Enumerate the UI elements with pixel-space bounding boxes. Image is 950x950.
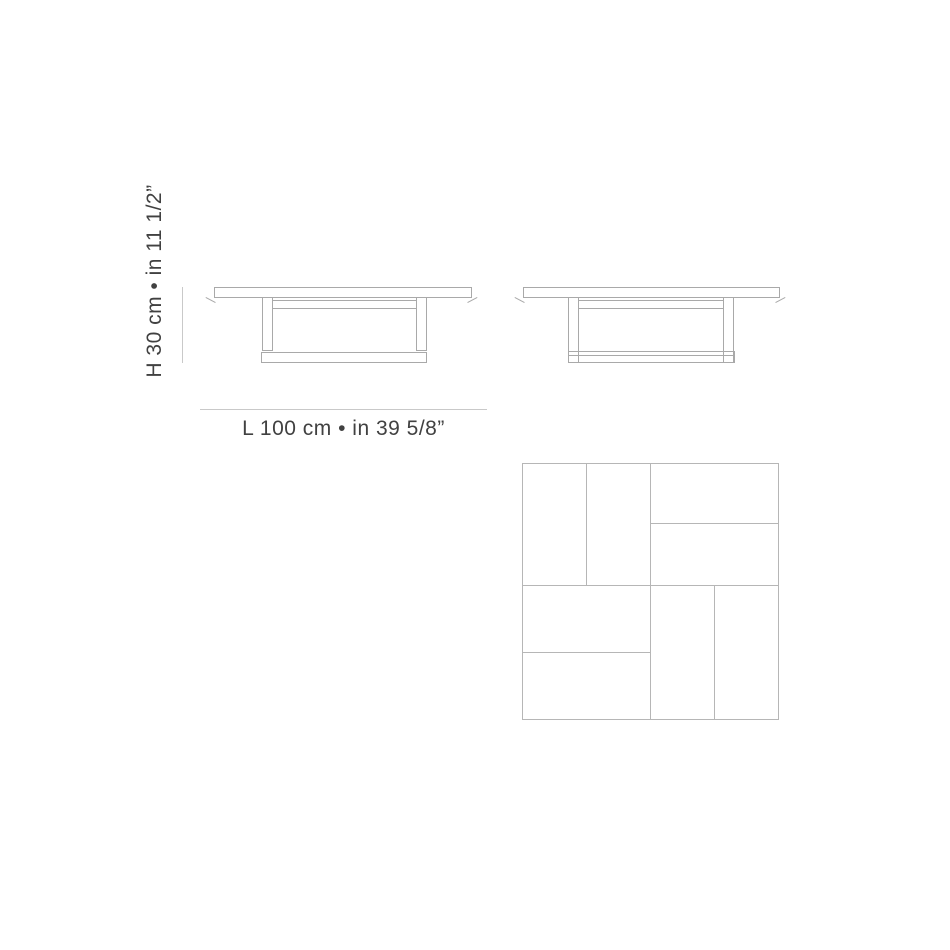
length-dimension-line	[200, 409, 487, 410]
plinth-rebate-line	[568, 355, 735, 356]
leg-joint-line-left	[262, 350, 273, 351]
plinth-base-front	[261, 352, 427, 363]
tabletop-side	[523, 287, 780, 298]
table-leg-right	[416, 298, 427, 351]
tabletop-front	[214, 287, 472, 298]
parquet-bottom-left-divider	[522, 652, 650, 653]
height-dimension-label: H 30 cm • in 11 1/2”	[142, 171, 168, 391]
parquet-top-right-divider	[650, 523, 778, 524]
length-dimension-label: L 100 cm • in 39 5/8”	[200, 416, 487, 442]
height-dimension-line	[182, 287, 183, 363]
stretcher-rail-side	[579, 300, 723, 309]
plinth-base-side	[568, 351, 735, 363]
parquet-top-left-divider	[586, 463, 587, 585]
parquet-center-vertical-line	[650, 463, 651, 720]
parquet-bottom-right-divider	[714, 585, 715, 719]
leg-joint-line-right	[416, 350, 427, 351]
parquet-center-horizontal-line	[522, 585, 779, 586]
stretcher-rail-front	[272, 300, 417, 309]
technical-drawing-canvas: H 30 cm • in 11 1/2” L 100 cm • in 39 5/…	[0, 0, 950, 950]
